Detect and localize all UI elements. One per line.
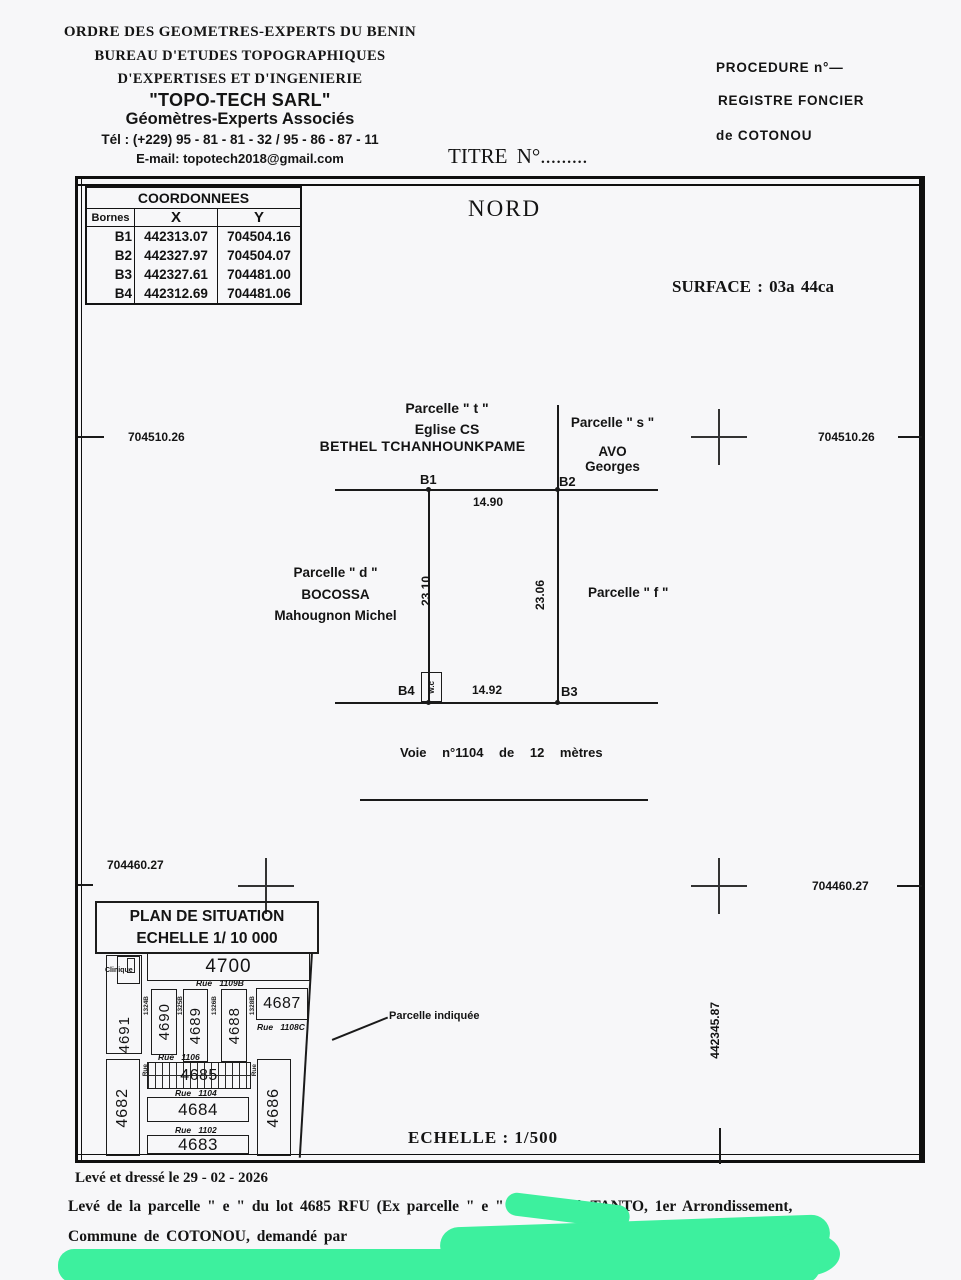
lot-4688-box: 4688: [221, 989, 247, 1062]
dimension-bottom: 14.92: [472, 683, 502, 697]
surface-label: SURFACE : 03a 44ca: [672, 277, 834, 297]
table-row: B1 442313.07 704504.16: [86, 227, 301, 247]
road-edge-line: [360, 799, 648, 801]
lot-4688-label: 4688: [226, 1007, 243, 1044]
street-1106-label: Rue 1106: [158, 1052, 200, 1062]
col-header-bornes: Bornes: [86, 209, 135, 227]
col-header-x: X: [135, 209, 218, 227]
survey-date-line: Levé et dressé le 29 - 02 - 2026: [75, 1170, 268, 1187]
lot-4684-label: 4684: [178, 1100, 218, 1120]
borne-x: 442327.61: [135, 265, 218, 284]
grid-tick-bottom-right: [897, 885, 922, 887]
lot-4690-box: 4690: [151, 989, 177, 1055]
corner-label-b3: B3: [561, 684, 578, 699]
org-name-line3: D'EXPERTISES ET D'INGENIERIE: [60, 71, 420, 88]
col-header-y: Y: [218, 209, 302, 227]
borne-id: B3: [86, 265, 135, 284]
coordinates-table-title: COORDONNEES: [86, 187, 301, 209]
grid-tick-top-left: [78, 436, 104, 438]
lot-4682-box: 4682: [106, 1059, 140, 1156]
wc-annex-box: w.c: [421, 672, 442, 702]
parcel-t-label: Parcelle " t " Eglise CS: [322, 398, 572, 440]
lot-4685-block: 4685: [147, 1062, 251, 1089]
footer-text-line2: Commune de COTONOU, demandé par: [68, 1228, 347, 1246]
lot-4700-label: 4700: [205, 956, 251, 978]
grid-label-bottom-left: 704460.27: [107, 858, 164, 872]
parcel-s-line3: Georges: [560, 459, 665, 475]
firm-phone: Tél : (+229) 95 - 81 - 81 - 32 / 95 - 86…: [60, 132, 420, 147]
firm-email: E-mail: topotech2018@gmail.com: [60, 151, 420, 166]
parcel-d-line2: BOCOSSA: [268, 584, 403, 606]
redaction-bar-bottom: [58, 1249, 820, 1280]
corner-label-b2: B2: [559, 474, 576, 489]
lot-4684-box: 4684: [147, 1097, 249, 1122]
grid-tick-bottom-left: [78, 884, 93, 886]
parcel-s-line2: AVO: [560, 444, 665, 460]
firm-subtitle: Géomètres-Experts Associés: [60, 110, 420, 129]
grid-tick-top-right: [898, 436, 922, 438]
north-label: NORD: [468, 196, 541, 222]
lot-4690-label: 4690: [156, 1003, 173, 1040]
borne-id: B1: [86, 227, 135, 247]
main-scale-label: ECHELLE : 1/500: [408, 1128, 558, 1148]
corner-point-b1: [426, 487, 431, 492]
grid-label-top-left: 704510.26: [128, 430, 185, 444]
corner-point-b3: [555, 700, 560, 705]
borne-y: 704481.00: [218, 265, 302, 284]
clinic-label: Clinique: [105, 967, 133, 974]
parcel-s-line1: Parcelle " s ": [560, 415, 665, 431]
dimension-top: 14.90: [473, 495, 503, 509]
corner-label-b4: B4: [398, 683, 415, 698]
procedure-number-label: PROCEDURE n°—: [716, 60, 844, 75]
lot-4682-label: 4682: [114, 1088, 132, 1128]
street-1328B-label: 1328B: [249, 996, 256, 1015]
parcel-t-line2: Eglise CS: [322, 419, 572, 440]
situation-title-box: PLAN DE SITUATION ECHELLE 1/ 10 000: [95, 901, 319, 954]
parcel-d-line1: Parcelle " d ": [268, 562, 403, 584]
parcel-s-label: Parcelle " s " AVO Georges: [560, 415, 665, 475]
org-name-line2: BUREAU D'ETUDES TOPOGRAPHIQUES: [60, 48, 420, 65]
grid-label-bottom-right: 704460.27: [812, 879, 869, 893]
borne-x: 442312.69: [135, 284, 218, 304]
lot-4689-label: 4689: [187, 1007, 204, 1044]
situation-title: PLAN DE SITUATION: [130, 906, 285, 928]
borne-x: 442327.97: [135, 246, 218, 265]
frame-inner-left-line: [81, 179, 82, 1160]
parcel-t-line1: Parcelle " t ": [322, 398, 572, 419]
street-1326B-label: 1326B: [211, 996, 218, 1015]
borne-y: 704504.07: [218, 246, 302, 265]
borne-y: 704481.06: [218, 284, 302, 304]
pointer-label: Parcelle indiquée: [389, 1010, 479, 1022]
street-1109B-label: Rue 1109B: [196, 978, 244, 988]
lot-4700-box: 4700: [147, 953, 310, 981]
lot-4691-label: 4691: [116, 1012, 133, 1053]
street-1108C-label: Rue 1108C: [257, 1022, 305, 1032]
corner-label-b1: B1: [420, 472, 437, 487]
street-1324B-label: 1324B: [143, 996, 150, 1015]
land-register-place: de COTONOU: [716, 128, 812, 143]
street-1325B-label: 1325B: [177, 996, 184, 1015]
situation-scale: ECHELLE 1/ 10 000: [136, 928, 277, 950]
title-number: TITRE N°.........: [448, 144, 588, 169]
borne-y: 704504.16: [218, 227, 302, 247]
wc-annex-label: w.c: [427, 681, 436, 694]
grid-label-east: 442345.87: [708, 1002, 722, 1059]
table-row: B2 442327.97 704504.07: [86, 246, 301, 265]
coordinates-table: COORDONNEES Bornes X Y B1 442313.07 7045…: [85, 186, 302, 305]
dimension-left: 23.10: [419, 576, 433, 606]
lot-4683-box: 4683: [147, 1135, 249, 1154]
street-1102-label: Rue 1102: [175, 1125, 217, 1135]
lot-4686-label: 4686: [265, 1088, 283, 1128]
firm-name: "TOPO-TECH SARL": [60, 90, 420, 111]
plot-line-east: [557, 405, 559, 703]
parcel-d-label: Parcelle " d " BOCOSSA Mahougnon Michel: [268, 562, 403, 627]
table-row: B3 442327.61 704481.00: [86, 265, 301, 284]
borne-id: B2: [86, 246, 135, 265]
lot-4687-label: 4687: [263, 995, 301, 1013]
grid-cross-bottom-right: [691, 858, 747, 914]
table-row: B4 442312.69 704481.06: [86, 284, 301, 304]
footer-text-line1: Levé de la parcelle " e " du lot 4685 RF…: [68, 1198, 792, 1216]
borne-x: 442313.07: [135, 227, 218, 247]
grid-tick-east-vertical: [719, 1128, 721, 1164]
dimension-right: 23.06: [533, 580, 547, 610]
parcel-t-owner: BETHEL TCHANHOUNKPAME: [300, 438, 545, 454]
grid-label-top-right: 704510.26: [818, 430, 875, 444]
survey-document-page: ORDRE DES GEOMETRES-EXPERTS DU BENIN BUR…: [0, 0, 961, 1280]
plot-line-bottom: [335, 702, 658, 704]
lot-4683-label: 4683: [178, 1135, 218, 1155]
lot-4685-label: 4685: [180, 1067, 218, 1085]
parcel-f-label: Parcelle " f ": [588, 585, 668, 600]
road-label: Voie n°1104 de 12 mètres: [400, 745, 603, 760]
grid-cross-top-right: [691, 409, 747, 465]
land-register-label: REGISTRE FONCIER: [718, 93, 864, 108]
lot-4686-box: 4686: [257, 1059, 291, 1156]
lot-4687-box: 4687: [256, 988, 308, 1020]
org-name-line1: ORDRE DES GEOMETRES-EXPERTS DU BENIN: [60, 24, 420, 41]
parcel-d-line3: Mahougnon Michel: [268, 605, 403, 627]
street-left-of-4685: Rue: [142, 1064, 149, 1076]
borne-id: B4: [86, 284, 135, 304]
plot-line-top: [335, 489, 658, 491]
